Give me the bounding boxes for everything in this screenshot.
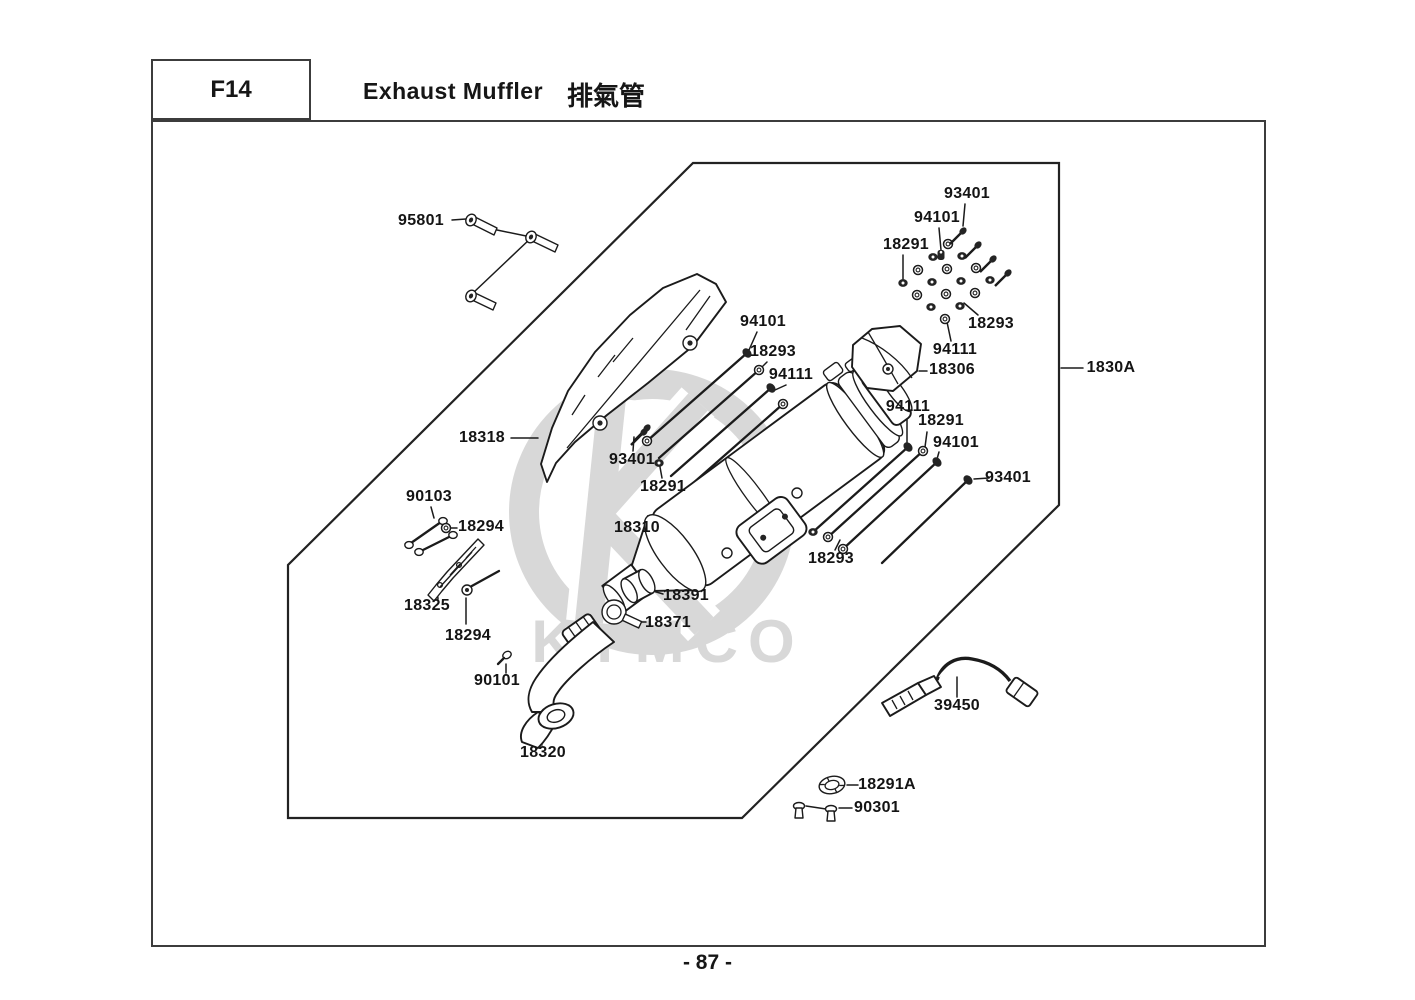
bolt-18294-drawing (462, 571, 499, 595)
oxygen-sensor-drawing (882, 658, 1039, 716)
end-cap-drawing (852, 326, 921, 391)
mounting-rods-drawing (405, 518, 457, 556)
fastener-grid (898, 226, 1013, 324)
rivet-drawing (794, 803, 837, 822)
bolt-95801-drawing (464, 212, 558, 310)
parts-catalog-page: F14 Exhaust Muffler 排氣管 KYMCO (0, 0, 1415, 1000)
diagram-plate-outline (288, 163, 1059, 818)
stay-bracket-drawing (428, 539, 484, 601)
gasket-drawing (818, 774, 847, 796)
exploded-diagram: KYMCO (0, 0, 1415, 1000)
page-number: - 87 - (0, 951, 1415, 975)
section-code: F14 (210, 76, 251, 104)
section-code-box: F14 (151, 59, 311, 120)
screw-90101-drawing (498, 650, 513, 664)
